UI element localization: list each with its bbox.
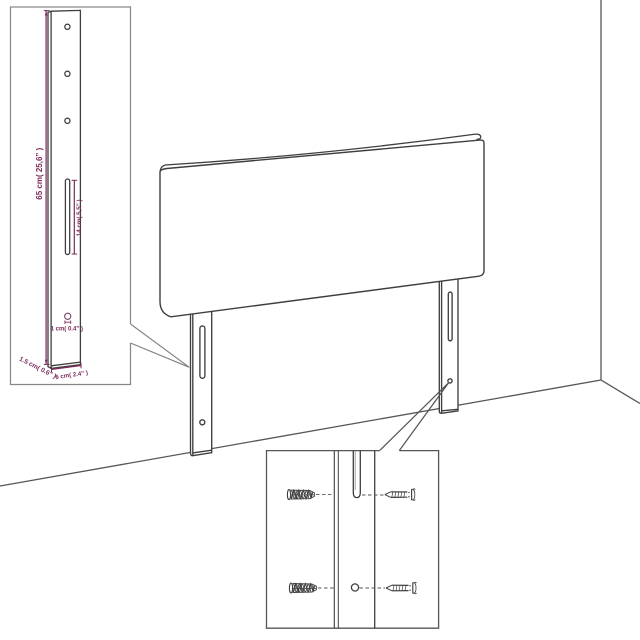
svg-text:14 cm( 5,5” ): 14 cm( 5,5” )	[76, 199, 83, 236]
svg-text:1 cm( 0.4” ): 1 cm( 0.4” )	[51, 326, 83, 332]
svg-text:65 cm( 25,6” ): 65 cm( 25,6” )	[35, 147, 44, 199]
